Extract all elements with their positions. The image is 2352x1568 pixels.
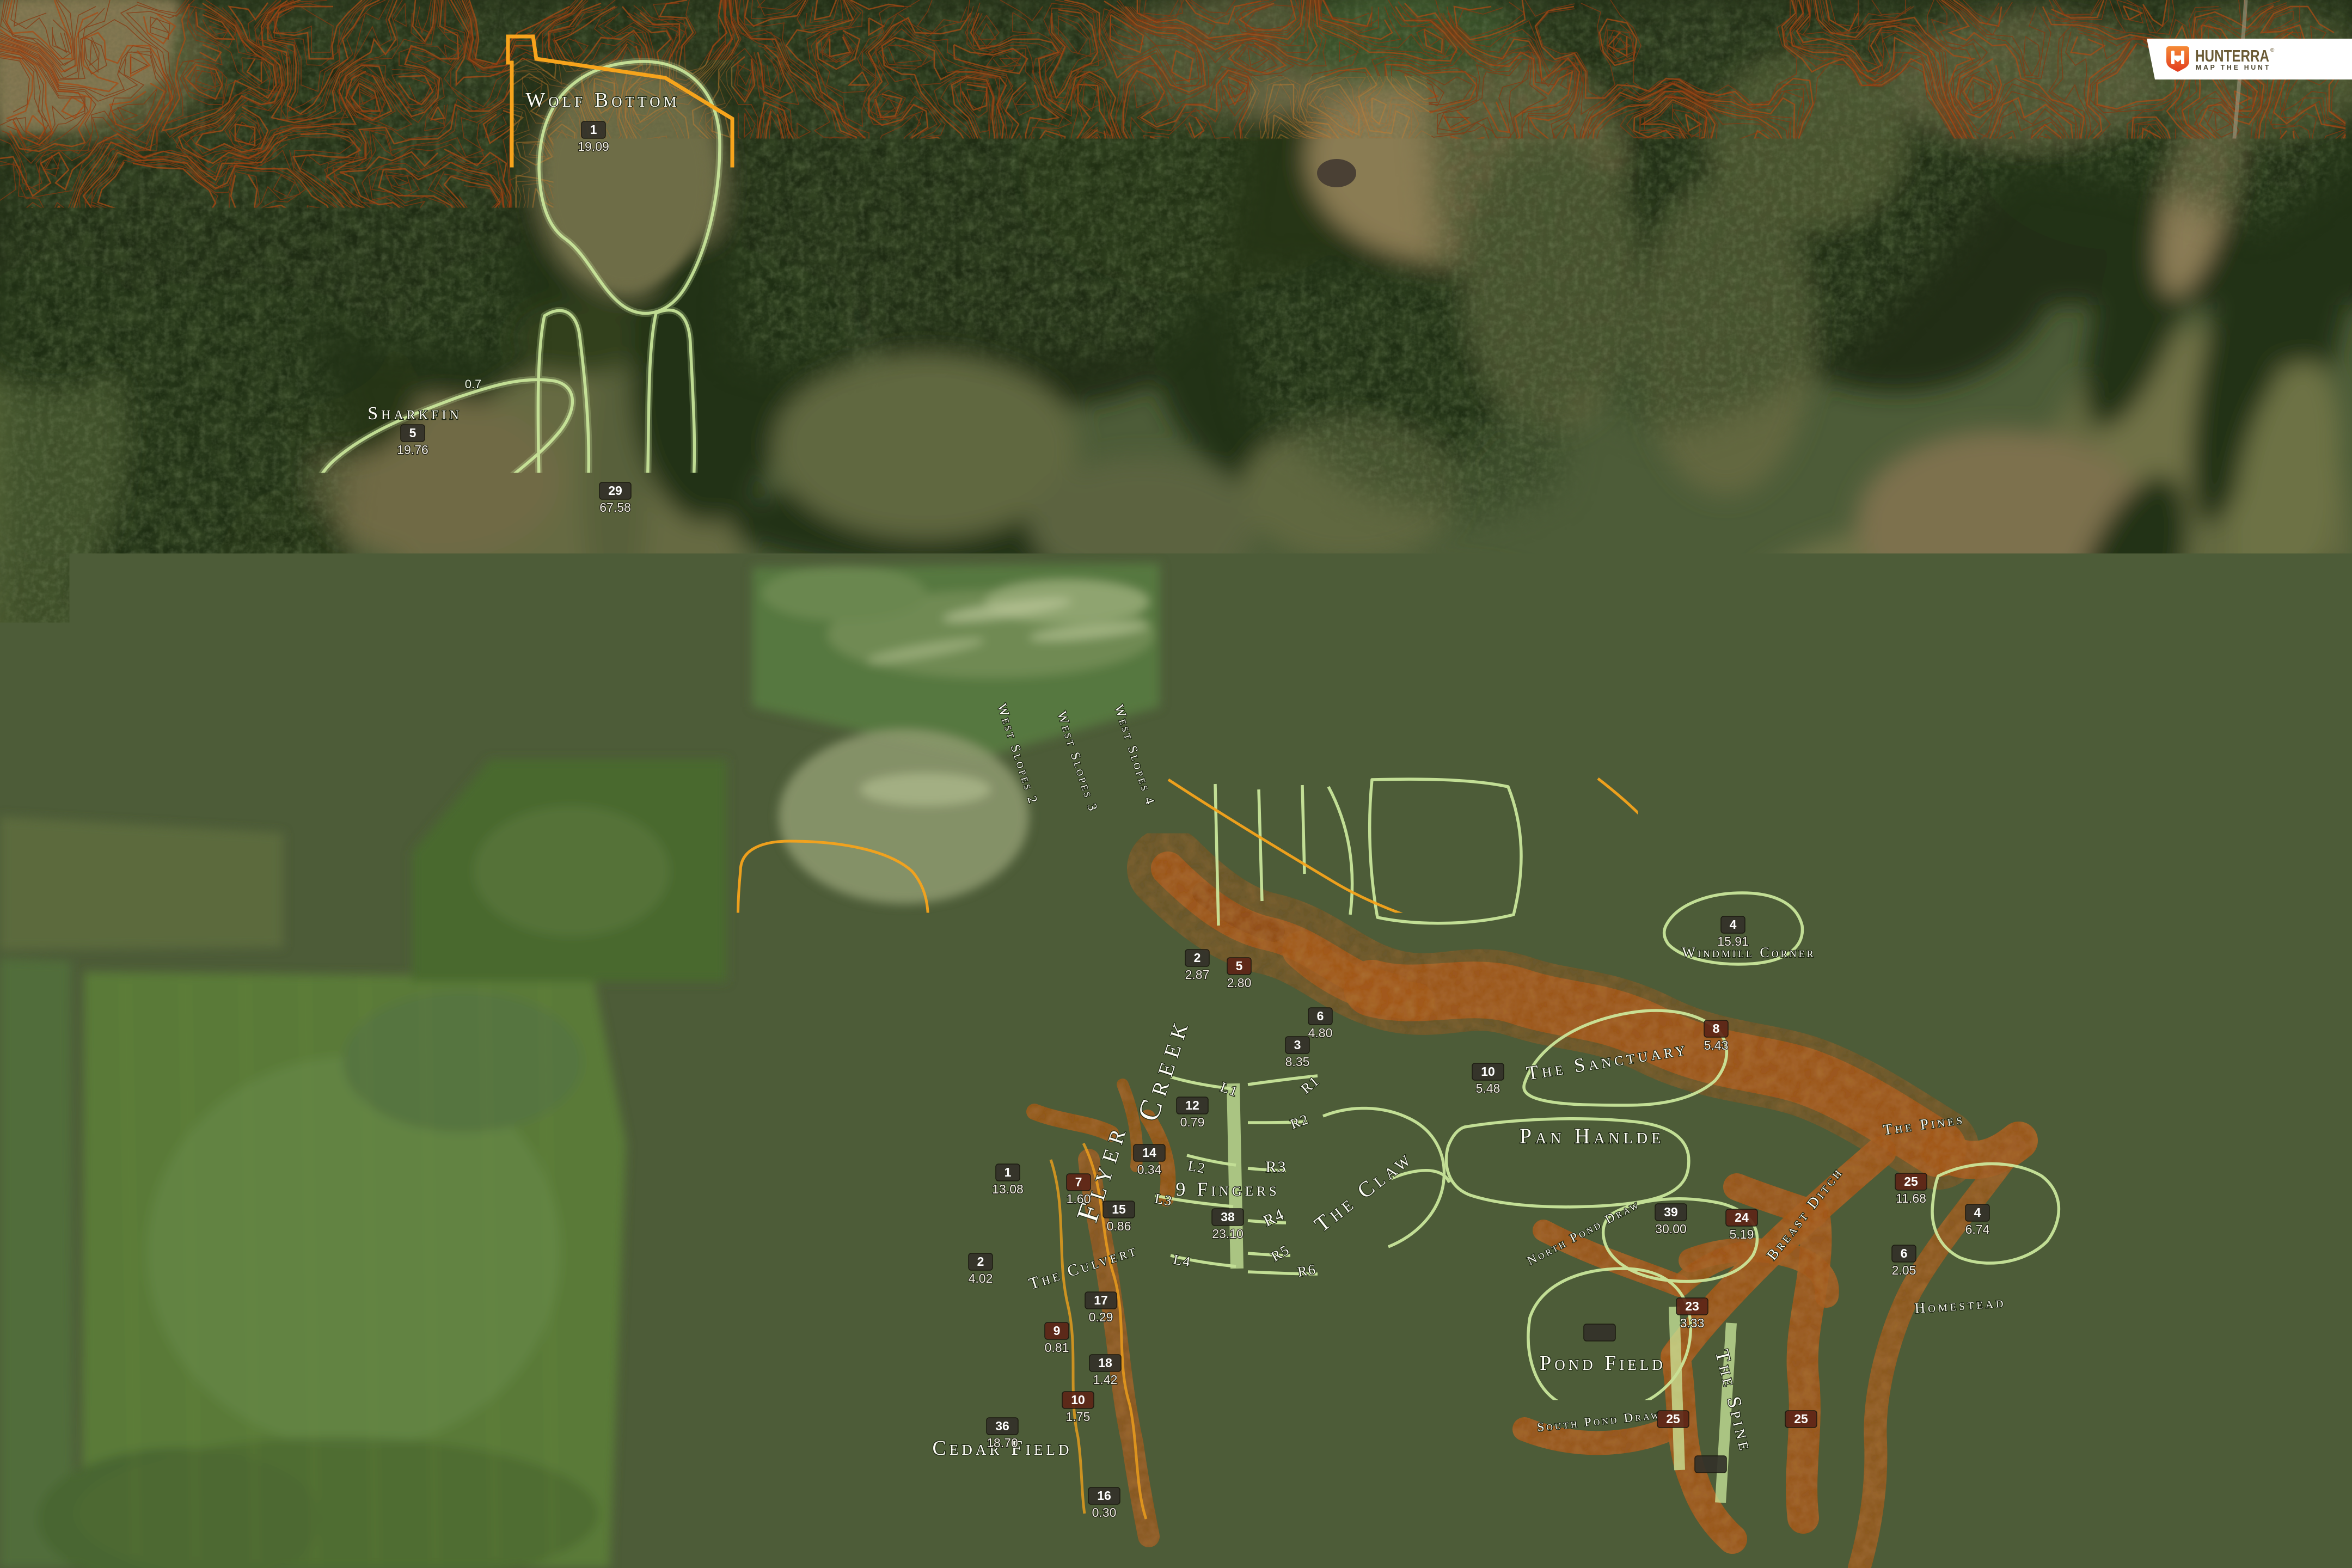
svg-text:0.7: 0.7 <box>465 377 482 391</box>
svg-text:0.86: 0.86 <box>1107 1219 1131 1233</box>
svg-text:2.05: 2.05 <box>1892 1263 1916 1277</box>
svg-text:MAP THE HUNT: MAP THE HUNT <box>2196 63 2271 71</box>
svg-text:5.48: 5.48 <box>1476 1081 1500 1095</box>
svg-text:5.43: 5.43 <box>1704 1038 1729 1052</box>
svg-text:3: 3 <box>1294 1038 1301 1052</box>
svg-text:29: 29 <box>608 483 622 498</box>
svg-text:0.5: 0.5 <box>1692 1515 1708 1529</box>
svg-text:®: ® <box>2270 47 2275 53</box>
svg-text:19.76: 19.76 <box>397 443 428 457</box>
svg-text:2.0: 2.0 <box>1289 951 1306 965</box>
svg-text:L2: L2 <box>1187 1157 1207 1176</box>
svg-text:use of this map. Reproduction: use of this map. Reproduction of this ma… <box>2147 1538 2295 1543</box>
svg-text:1.42: 1.42 <box>1093 1373 1118 1387</box>
svg-text:25: 25 <box>1904 1174 1918 1189</box>
svg-text:7: 7 <box>1075 1175 1082 1189</box>
svg-text:23: 23 <box>1685 1299 1699 1313</box>
svg-text:57.40: 57.40 <box>854 742 885 756</box>
svg-text:35: 35 <box>1290 934 1304 948</box>
svg-text:1: 1 <box>590 122 597 137</box>
svg-text:38: 38 <box>1221 1210 1235 1224</box>
svg-text:18: 18 <box>1098 1356 1112 1370</box>
svg-text:1.75: 1.75 <box>1066 1410 1091 1424</box>
svg-text:28: 28 <box>862 725 877 739</box>
svg-text:0.29: 0.29 <box>1089 1310 1113 1324</box>
svg-text:Windmill Corner: Windmill Corner <box>1682 945 1815 960</box>
svg-text:5: 5 <box>409 426 416 440</box>
svg-text:16: 16 <box>948 613 962 627</box>
svg-text:6.39: 6.39 <box>437 923 461 938</box>
svg-text:0.30: 0.30 <box>1092 1505 1117 1520</box>
svg-text:16: 16 <box>1097 1489 1111 1503</box>
svg-text:Kettelson Hill: Kettelson Hill <box>1257 801 1448 826</box>
svg-text:1: 1 <box>1004 1165 1012 1179</box>
svg-text:19: 19 <box>1000 990 1014 1004</box>
svg-text:L3: L3 <box>1154 1190 1174 1209</box>
svg-text:9 Fingers: 9 Fingers <box>1175 1178 1279 1200</box>
svg-text:0.95: 0.95 <box>742 830 766 844</box>
svg-text:0.81: 0.81 <box>1045 1340 1069 1355</box>
svg-text:104.12: 104.12 <box>1327 1357 1365 1371</box>
svg-text:25: 25 <box>1666 1412 1680 1426</box>
svg-text:14: 14 <box>1142 1146 1156 1160</box>
svg-text:LLC explicitly disclaims any r: LLC explicitly disclaims any representat… <box>2147 1510 2308 1516</box>
svg-text:39.20: 39.20 <box>991 1007 1022 1021</box>
svg-text:10: 10 <box>1071 1393 1085 1407</box>
svg-text:24: 24 <box>1735 1210 1749 1224</box>
svg-text:8.35: 8.35 <box>1285 1055 1310 1069</box>
svg-text:21: 21 <box>442 906 456 921</box>
svg-text:5: 5 <box>1236 959 1243 973</box>
svg-text:6: 6 <box>1901 1246 1908 1260</box>
svg-text:1.79: 1.79 <box>1410 1031 1434 1045</box>
svg-text:23.10: 23.10 <box>1212 1227 1244 1241</box>
svg-text:11: 11 <box>1339 1340 1353 1355</box>
svg-text:3: 3 <box>420 675 427 689</box>
svg-text:7: 7 <box>1418 1014 1425 1028</box>
svg-text:2: 2 <box>1194 951 1201 965</box>
svg-text:1.60: 1.60 <box>1067 1192 1091 1206</box>
svg-text:Belltower: Belltower <box>1033 973 1143 993</box>
svg-text:13.08: 13.08 <box>992 1182 1024 1196</box>
svg-text:23.12: 23.12 <box>1695 1474 1726 1488</box>
svg-text:18.70: 18.70 <box>987 1436 1018 1450</box>
svg-text:3.33: 3.33 <box>1680 1316 1705 1330</box>
svg-text:56.73: 56.73 <box>589 877 620 891</box>
svg-text:11.68: 11.68 <box>1896 1191 1926 1205</box>
svg-text:3: 3 <box>750 813 757 827</box>
svg-text:10: 10 <box>1481 1064 1495 1079</box>
svg-text:46.36: 46.36 <box>939 630 971 644</box>
svg-text:67.58: 67.58 <box>599 500 631 514</box>
svg-text:36: 36 <box>995 1419 1009 1433</box>
svg-text:25: 25 <box>1794 1412 1808 1426</box>
svg-text:8.98: 8.98 <box>1394 989 1418 1003</box>
svg-text:Varmint: Varmint <box>581 568 669 588</box>
svg-text:2: 2 <box>601 860 608 874</box>
svg-text:liable for any losses, damages: liable for any losses, damages, or decis… <box>2147 1532 2308 1538</box>
svg-text:40: 40 <box>1704 1457 1718 1471</box>
svg-text:9: 9 <box>1053 1324 1061 1338</box>
svg-text:31: 31 <box>1190 800 1204 814</box>
svg-text:12.36: 12.36 <box>773 930 804 945</box>
svg-text:R3: R3 <box>1265 1158 1287 1176</box>
svg-text:L4: L4 <box>1172 1251 1192 1270</box>
svg-text:4: 4 <box>1974 1205 1981 1220</box>
svg-text:10.47: 10.47 <box>1584 1342 1615 1356</box>
svg-text:13: 13 <box>781 914 795 928</box>
svg-text:HUNTERRA: HUNTERRA <box>2195 46 2269 65</box>
svg-text:8: 8 <box>1713 1021 1720 1036</box>
svg-text:2.80: 2.80 <box>1227 976 1252 990</box>
svg-text:4.80: 4.80 <box>1308 1026 1333 1040</box>
svg-text:39: 39 <box>1664 1205 1678 1219</box>
svg-text:direction. In no event will Hu: direction. In no event will Hunterra Map… <box>2147 1527 2300 1532</box>
svg-text:52.31: 52.31 <box>1392 855 1424 869</box>
svg-text:West Slopes 1: West Slopes 1 <box>820 809 952 827</box>
svg-text:2: 2 <box>977 1254 984 1269</box>
svg-text:0.79: 0.79 <box>1180 1115 1205 1129</box>
svg-text:3.10: 3.10 <box>1185 817 1210 831</box>
svg-text:accuracy of this data. This ma: accuracy of this data. This map should n… <box>2147 1516 2305 1521</box>
svg-text:THIS MAP IS NOT A LEGAL SURVEY: THIS MAP IS NOT A LEGAL SURVEY DOCUMENT!… <box>2147 1505 2307 1510</box>
svg-text:Pan Hanlde: Pan Hanlde <box>1520 1124 1664 1148</box>
svg-text:12: 12 <box>1185 1098 1199 1112</box>
svg-text:requiring exacting measurement: requiring exacting measurement of distan… <box>2147 1521 2299 1527</box>
svg-text:0.57: 0.57 <box>469 797 493 811</box>
svg-text:19.09: 19.09 <box>578 139 609 154</box>
svg-text:22: 22 <box>1592 1325 1607 1339</box>
svg-text:38.29: 38.29 <box>407 692 439 706</box>
svg-text:Sharkfin: Sharkfin <box>367 403 462 424</box>
svg-text:9: 9 <box>1402 972 1410 987</box>
svg-text:0.34: 0.34 <box>1137 1162 1162 1177</box>
svg-text:4.02: 4.02 <box>969 1271 993 1285</box>
svg-text:Boomerang: Boomerang <box>351 646 468 666</box>
svg-text:0.6: 0.6 <box>1230 1161 1247 1175</box>
svg-text:0.5: 0.5 <box>1176 867 1193 881</box>
svg-text:15: 15 <box>1112 1202 1126 1216</box>
svg-text:15.91: 15.91 <box>1717 934 1749 948</box>
svg-text:5.19: 5.19 <box>1730 1227 1754 1241</box>
svg-text:R6: R6 <box>1296 1261 1318 1280</box>
svg-text:0.5: 0.5 <box>948 1400 965 1413</box>
svg-text:34: 34 <box>1401 838 1415 853</box>
svg-text:7: 7 <box>477 780 485 794</box>
svg-text:4: 4 <box>1730 917 1737 932</box>
svg-text:2.87: 2.87 <box>1185 967 1210 982</box>
svg-text:17: 17 <box>1094 1293 1108 1307</box>
svg-text:Wolf Bottom: Wolf Bottom <box>525 89 679 112</box>
svg-text:30.00: 30.00 <box>1655 1222 1687 1236</box>
svg-text:6.74: 6.74 <box>1965 1222 1990 1236</box>
svg-text:6: 6 <box>1317 1009 1324 1023</box>
